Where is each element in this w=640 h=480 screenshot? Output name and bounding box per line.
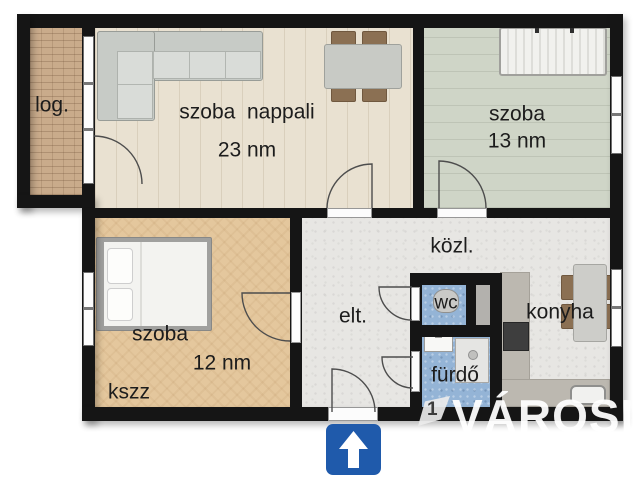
room-label-wc: wc: [434, 294, 457, 313]
bed-pillow: [107, 288, 133, 321]
window-mullion: [83, 82, 94, 85]
bathroom-door-sill: [411, 351, 420, 392]
sofa-chaise-cushions: [117, 51, 153, 119]
wc-door-sill: [411, 287, 420, 321]
daybed: [499, 27, 607, 76]
entrance-arrow-sign: [326, 424, 381, 475]
entrance-door-sill: [328, 407, 378, 421]
watermark-logo-glyph: 1: [427, 399, 438, 421]
window-mullion: [83, 307, 94, 310]
room-label-bathroom: fürdő: [431, 365, 479, 386]
room-label-bedroom1: szoba: [132, 324, 188, 345]
shower-head: [468, 350, 478, 360]
wall-loggia-left: [17, 14, 30, 208]
room-label-living: szoba nappali: [179, 102, 314, 123]
wall-wc-shaft-divider: [466, 285, 476, 325]
room-label-bedroom2: szoba: [489, 104, 545, 125]
room-label-hall: közl.: [430, 236, 473, 257]
watermark-text: VÁROSI: [452, 393, 634, 439]
floor-plan: log. szoba nappali 23 nm szoba 13 nm szo…: [0, 0, 640, 480]
living-door-sill: [327, 208, 372, 218]
dining-table: [324, 44, 402, 89]
bed-pillow: [107, 248, 133, 284]
room-area-bedroom1: 12 nm: [193, 353, 251, 374]
room-area-bedroom2: 13 nm: [488, 131, 546, 152]
bedroom2-door-sill: [437, 208, 487, 218]
duct-shaft: [476, 285, 490, 325]
corner-note: kszz: [108, 382, 150, 403]
wall-top: [17, 14, 623, 28]
room-label-loggia: log.: [35, 95, 69, 116]
balcony-window-door: [83, 36, 94, 184]
window-mullion: [611, 113, 622, 116]
window-mullion: [83, 128, 94, 131]
bed-duvet-fold: [140, 242, 142, 326]
bedroom1-door-sill: [291, 292, 301, 343]
window-mullion: [611, 306, 622, 309]
entrance-arrow-icon: [326, 424, 381, 475]
room-label-entry: elt.: [339, 306, 367, 327]
wall-living-bedroom2: [413, 14, 424, 218]
wall-sanitary-top: [410, 273, 502, 285]
room-area-living: 23 nm: [218, 140, 276, 161]
stove: [503, 322, 529, 351]
room-label-kitchen: konyha: [526, 302, 594, 323]
